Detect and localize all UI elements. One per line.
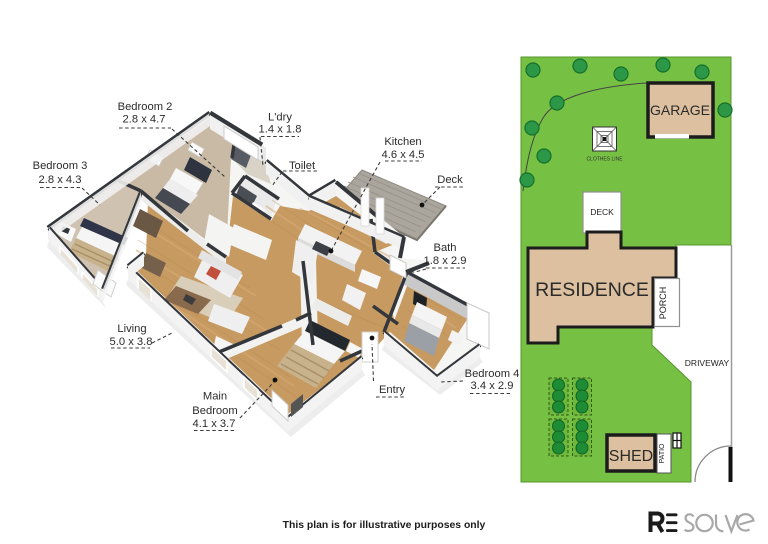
svg-text:1.8 x 2.9: 1.8 x 2.9 xyxy=(424,255,467,267)
svg-text:PORCH: PORCH xyxy=(658,287,668,320)
svg-text:Deck: Deck xyxy=(437,174,463,186)
svg-text:DRIVEWAY: DRIVEWAY xyxy=(685,358,730,368)
svg-text:SHED: SHED xyxy=(609,448,653,465)
svg-text:Toilet: Toilet xyxy=(289,160,316,172)
svg-text:2.8 x 4.7: 2.8 x 4.7 xyxy=(123,114,166,126)
svg-text:4.1 x 3.7: 4.1 x 3.7 xyxy=(193,418,236,430)
svg-text:3.4 x 2.9: 3.4 x 2.9 xyxy=(471,380,514,392)
svg-text:RESIDENCE: RESIDENCE xyxy=(535,279,649,301)
svg-text:PATIO: PATIO xyxy=(659,443,666,464)
svg-text:Bath: Bath xyxy=(433,242,456,254)
svg-text:Kitchen: Kitchen xyxy=(384,136,421,148)
svg-text:2.8 x 4.3: 2.8 x 4.3 xyxy=(39,174,82,186)
svg-text:Main: Main xyxy=(203,391,227,403)
svg-text:Bedroom 4: Bedroom 4 xyxy=(465,368,520,380)
svg-text:Living: Living xyxy=(117,323,146,335)
svg-text:5.0 x 3.8: 5.0 x 3.8 xyxy=(110,336,153,348)
svg-text:CLOTHES LINE: CLOTHES LINE xyxy=(586,157,623,163)
svg-text:GARAGE: GARAGE xyxy=(650,102,710,118)
svg-text:Bedroom 2: Bedroom 2 xyxy=(118,101,173,113)
svg-text:Bedroom 3: Bedroom 3 xyxy=(33,160,88,172)
svg-text:4.6 x 4.5: 4.6 x 4.5 xyxy=(382,149,425,161)
svg-text:Entry: Entry xyxy=(379,384,406,396)
svg-text:This plan is for illustrative: This plan is for illustrative purposes o… xyxy=(283,520,486,531)
svg-text:L'dry: L'dry xyxy=(268,112,292,124)
svg-text:Bedroom: Bedroom xyxy=(192,405,237,417)
svg-text:DECK: DECK xyxy=(590,207,614,217)
svg-text:1.4 x 1.8: 1.4 x 1.8 xyxy=(259,124,302,136)
